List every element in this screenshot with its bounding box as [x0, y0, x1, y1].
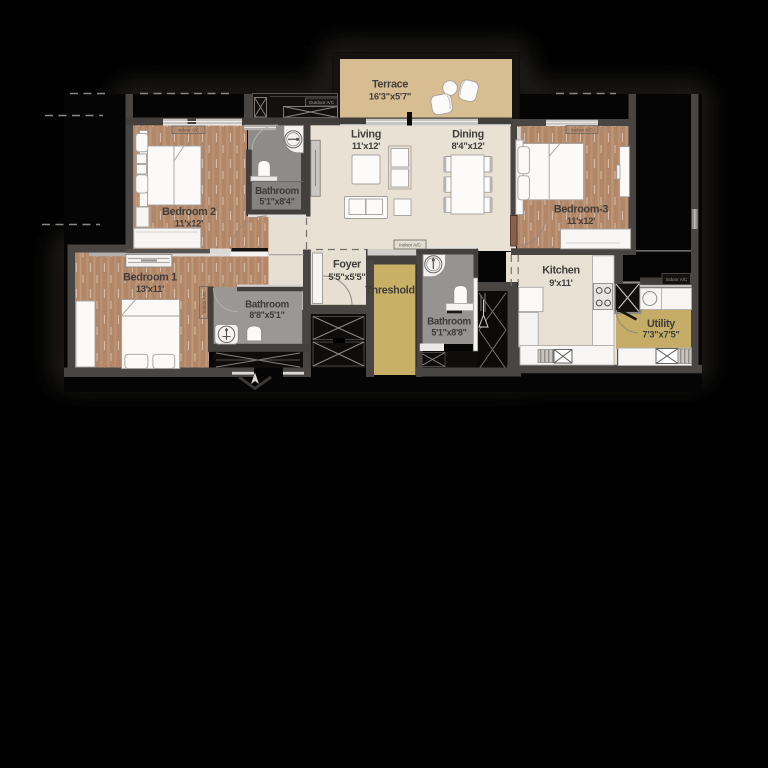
svg-text:Bedroom-3: Bedroom-3 [554, 204, 609, 216]
svg-text:Threshold: Threshold [365, 285, 415, 297]
svg-text:Bedroom 2: Bedroom 2 [162, 206, 216, 218]
svg-text:Indoor A/C: Indoor A/C [399, 243, 421, 248]
svg-text:13'x11': 13'x11' [136, 284, 164, 294]
svg-text:Indoor A/C: Indoor A/C [202, 291, 207, 313]
svg-text:5'5"x5'5": 5'5"x5'5" [328, 272, 365, 282]
svg-text:Indoor A/C: Indoor A/C [178, 128, 200, 133]
svg-text:Bathroom: Bathroom [245, 300, 289, 311]
svg-text:7'3"x7'5": 7'3"x7'5" [642, 330, 679, 340]
svg-text:9'x11': 9'x11' [549, 278, 572, 288]
svg-text:11'x12': 11'x12' [352, 141, 380, 151]
svg-text:Living: Living [351, 129, 381, 141]
svg-text:Kitchen: Kitchen [542, 265, 580, 277]
svg-text:Outdoor A/C: Outdoor A/C [309, 100, 335, 105]
svg-text:Bathroom: Bathroom [255, 186, 299, 197]
svg-text:8'4"x12': 8'4"x12' [451, 141, 484, 151]
svg-text:11'x12': 11'x12' [175, 219, 203, 229]
svg-text:5'1"x8'8": 5'1"x8'8" [431, 328, 466, 338]
svg-text:8'8"x5'1": 8'8"x5'1" [249, 310, 284, 320]
svg-text:Indoor A/C: Indoor A/C [666, 277, 688, 282]
svg-text:Bathroom: Bathroom [427, 317, 471, 328]
svg-text:11'x12': 11'x12' [567, 216, 595, 226]
svg-text:Terrace: Terrace [372, 79, 408, 91]
svg-text:Bedroom 1: Bedroom 1 [123, 272, 177, 284]
svg-text:Indoor A/C: Indoor A/C [571, 127, 593, 132]
svg-text:5'1"x8'4": 5'1"x8'4" [259, 197, 294, 207]
svg-text:16'3"x5'7": 16'3"x5'7" [369, 92, 411, 102]
svg-text:Utility: Utility [647, 318, 675, 330]
svg-text:Foyer: Foyer [333, 259, 362, 271]
svg-text:Dining: Dining [452, 129, 484, 141]
